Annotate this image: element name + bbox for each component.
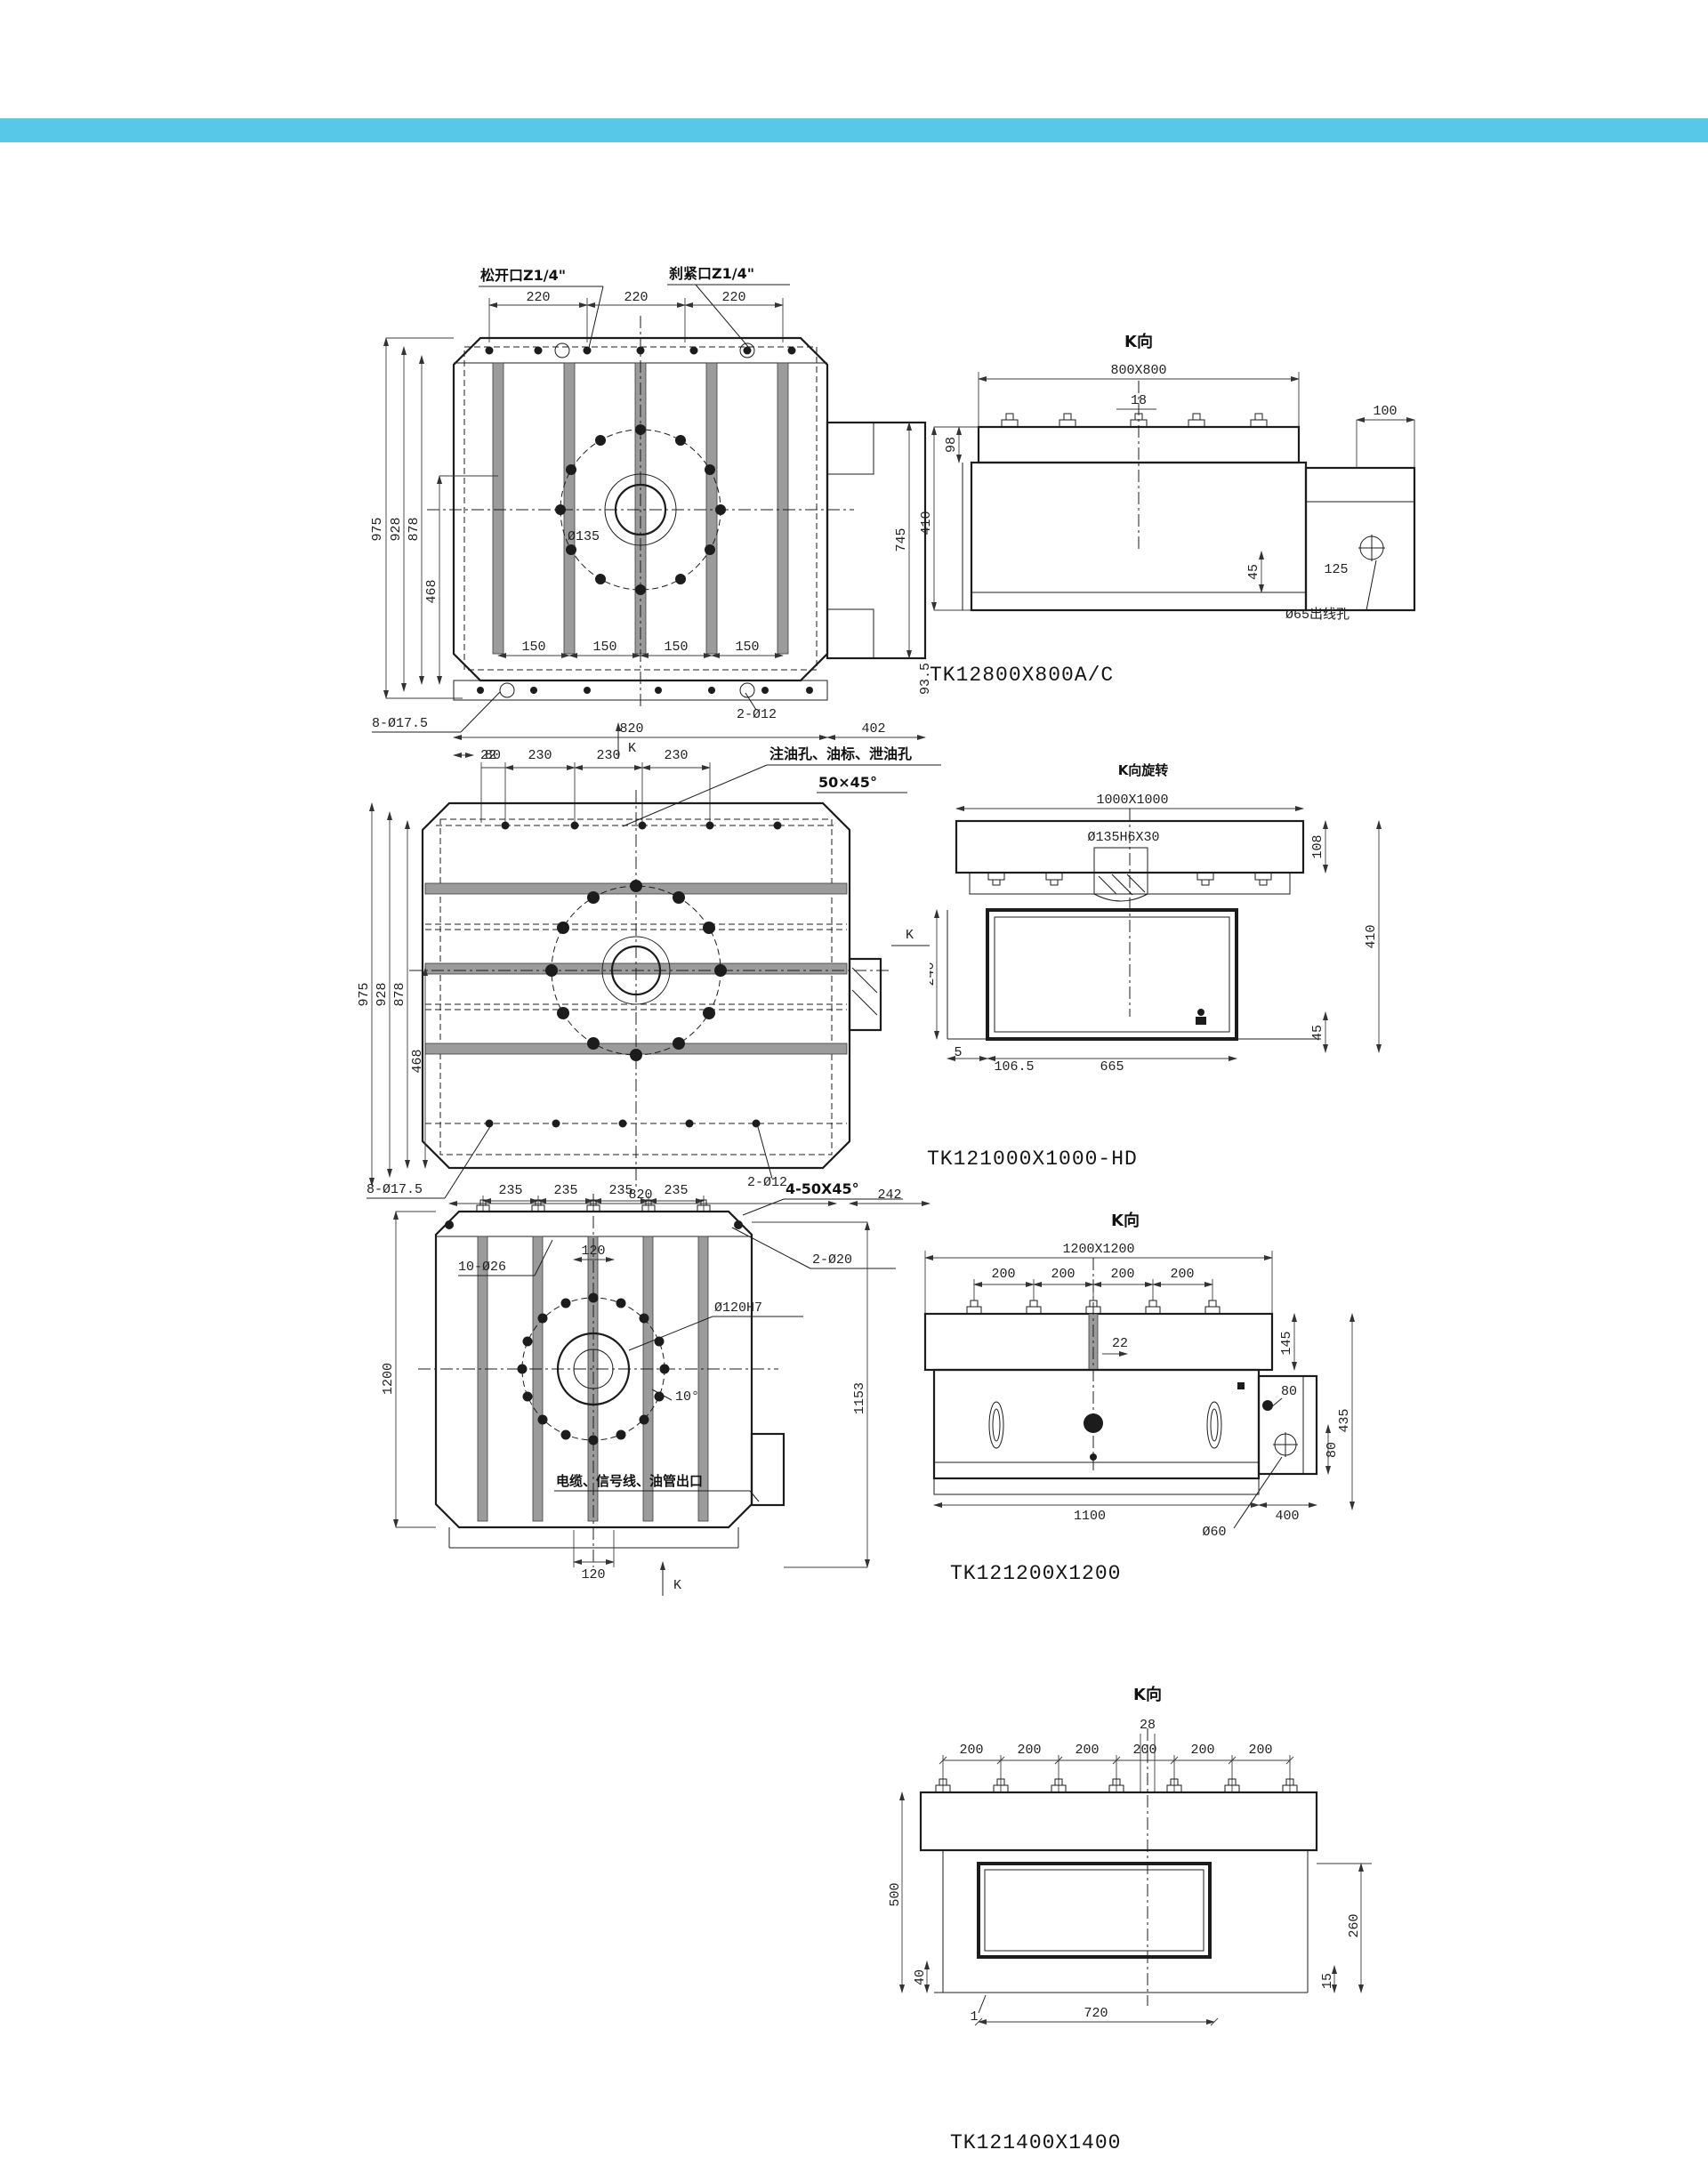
dim-label: 235 [608,1183,632,1198]
k-label: K [906,928,914,943]
port-callouts: 松开口Z1/4" 刹紧口Z1/4" [479,265,790,348]
table-body: Ø135 [427,316,854,707]
dim-label: 145 [1279,1331,1294,1355]
dim-label: 120 [581,1567,605,1582]
side-view-tk121400: K向 28 200 200 200 200 200 200 500 40 [890,1686,1423,2055]
dim-label: 402 [861,721,885,737]
side-box: K [850,928,930,1030]
dim-label: 500 [890,1882,903,1906]
side-view-tk121200-svg: K向 1200X1200 200 200 200 200 22 145 435 [912,1212,1423,1541]
dim-label: 15 [1320,1973,1335,1989]
dim-label: 235 [498,1183,522,1198]
dim-label: 200 [1170,1267,1194,1282]
dim-label: 108 [1310,834,1325,858]
dim-label: 220 [526,290,550,305]
front-view-tk121000: 80 230 230 230 注油孔、油标、泄油孔 50×45° [356,741,943,1208]
oil-label: 注油孔、油标、泄油孔 [769,745,912,762]
dim-label: 22 [1112,1336,1128,1351]
dim-label: 150 [735,640,759,655]
dim-label: 150 [664,640,688,655]
dim-label: 1200 [381,1363,396,1395]
chamfer-label: 4-50X45° [786,1180,859,1197]
dim-label: 120 [581,1244,605,1259]
front-view-tk121000-svg: 80 230 230 230 注油孔、油标、泄油孔 50×45° [356,741,943,1208]
body [934,1258,1259,1494]
dim-label: 410 [1364,924,1379,948]
table-body [409,790,890,1190]
bore-callout: Ø120H7 [714,1300,762,1316]
dim-label: 235 [553,1183,577,1198]
front-view-tk121200-svg: 235 235 235 235 4-50X45° [369,1176,952,1598]
dim-label: 100 [1373,404,1397,419]
dim-label: 80 [485,748,501,763]
dim-label: 1200X1200 [1062,1242,1134,1257]
dim-label: 820 [619,721,643,737]
front-view-tk12800: 松开口Z1/4" 刹紧口Z1/4" 220 220 220 [365,262,934,761]
front-view-tk12800-svg: 松开口Z1/4" 刹紧口Z1/4" 220 220 220 [365,262,934,761]
dim-label: 200 [1190,1743,1214,1758]
model-title: TK121200X1200 [950,1562,1121,1585]
dim-label: 200 [1132,1743,1156,1758]
model-title: TK12800X800A/C [930,664,1114,687]
dim-label: 45 [1310,1025,1325,1041]
view-title: K向旋转 [1118,762,1169,778]
dim-label: 200 [1051,1267,1075,1282]
chamfer-label: 50×45° [818,774,877,791]
pins-callout: 2-Ø12 [737,707,777,722]
dim-label: 260 [1347,1913,1362,1937]
dim-label: 1100 [1074,1509,1106,1524]
dim-label: 80 [1281,1384,1297,1399]
dim-label: 5 [954,1045,962,1060]
front-view-tk121200: 235 235 235 235 4-50X45° [369,1176,952,1598]
dim-label: 720 [1084,2006,1108,2021]
header-accent-bar [0,118,1708,142]
dim-label: 1000X1000 [1096,793,1168,808]
dim-label: 928 [389,517,404,541]
dim-label: 80 [1325,1442,1340,1458]
outlet-label: 电缆、信号线、油管出口 [556,1473,703,1489]
callouts: 10-Ø26 120 2-Ø20 Ø120H7 10° [458,1228,896,1405]
dim-label: 200 [1248,1743,1272,1758]
loosen-port-label: 松开口Z1/4" [480,267,566,284]
side-view-tk121400-svg: K向 28 200 200 200 200 200 200 500 40 [890,1686,1423,2055]
outlet-box: 80 80 [1259,1376,1340,1474]
view-title: K向 [1111,1212,1140,1230]
top-dimensions: 80 230 230 230 [481,748,710,823]
dim-label: 40 [913,1969,928,1985]
side-view-tk121200: K向 1200X1200 200 200 200 200 22 145 435 [912,1212,1423,1541]
view-title: K向 [1124,332,1153,351]
dim-label: 230 [528,748,552,763]
dim-label: 1 [970,2009,978,2025]
dim-label: 220 [721,290,745,305]
dim-label: 230 [664,748,688,763]
table-plate [921,1779,1317,1850]
model-title: TK121400X1400 [950,2131,1121,2154]
holes-callout: 10-Ø26 [458,1260,506,1275]
view-title: K向 [1133,1686,1162,1704]
dim-label: 240 [930,962,938,986]
outlet-box: 100 125 Ø65出线孔 [1285,404,1414,621]
dim-label: 200 [1110,1267,1134,1282]
body [934,1728,1308,2006]
dim-label: 150 [521,640,545,655]
pins-callout: 2-Ø20 [812,1252,852,1268]
left-dimensions: 975 928 878 468 [370,338,498,698]
dim-label: 220 [624,290,648,305]
bore-label: Ø135 [568,529,600,544]
dim-label: 928 [375,982,390,1006]
top-dimensions: 235 235 235 235 4-50X45° [483,1180,903,1215]
dim-label: 878 [392,982,407,1006]
hole-callout: Ø60 [1202,1525,1226,1540]
dim-label: 468 [410,1049,425,1073]
side-view-tk12800: K向 800X800 18 98 410 45 100 125 Ø65出线孔 [916,327,1432,621]
dim-label: 975 [357,982,372,1006]
dim-label: 106.5 [994,1059,1034,1070]
dim-label: 400 [1275,1509,1299,1524]
catalog-page: { "page": { "accent_color": "#58c8e9" },… [0,0,1708,2182]
dim-label: 45 [1246,564,1261,580]
dim-label: 745 [894,527,909,552]
dim-label: 150 [592,640,616,655]
side-view-tk121000-svg: K向旋转 1000X1000 Ø135H6X30 108 410 45 240 … [930,759,1423,1070]
side-view-tk121000: K向旋转 1000X1000 Ø135H6X30 108 410 45 240 … [930,759,1423,1070]
dim-label: 98 [944,437,959,453]
top-dimensions: 220 220 220 [489,290,783,342]
dim-label: 435 [1337,1408,1352,1432]
dim-label: 125 [1324,562,1348,577]
bore-label: Ø135H6X30 [1087,830,1159,845]
dim-label: 410 [919,511,934,535]
t-nubs [1002,414,1267,427]
front-view-tk121400: 1050 1000 540 515 10-Ø26 [298,1586,925,2173]
holes-callout: 8-Ø17.5 [372,716,428,731]
side-view-tk12800-svg: K向 800X800 18 98 410 45 100 125 Ø65出线孔 [916,327,1432,621]
dim-label: 230 [596,748,620,763]
front-view-tk121400-svg: 1050 1000 540 515 10-Ø26 [298,1586,925,2173]
dim-label: 468 [424,579,439,603]
dim-label: 200 [991,1267,1015,1282]
dim-label: 665 [1100,1059,1124,1070]
model-title: TK121000X1000-HD [927,1147,1138,1171]
dim-label: 1153 [852,1382,867,1414]
dim-label: 800X800 [1110,363,1166,378]
dim-label: 878 [407,517,422,541]
left-dimensions: 975 928 878 468 [357,803,425,1186]
dim-label: 200 [1075,1743,1099,1758]
dim-label: 975 [370,517,385,541]
dim-label: 200 [959,1743,983,1758]
angle-label: 10° [675,1389,699,1405]
dim-label: 200 [1017,1743,1041,1758]
outlet-callout: Ø65出线孔 [1285,607,1349,621]
dim-label: 235 [664,1183,688,1198]
clamp-port-label: 刹紧口Z1/4" [669,265,754,282]
table-plate: 22 [925,1300,1272,1370]
